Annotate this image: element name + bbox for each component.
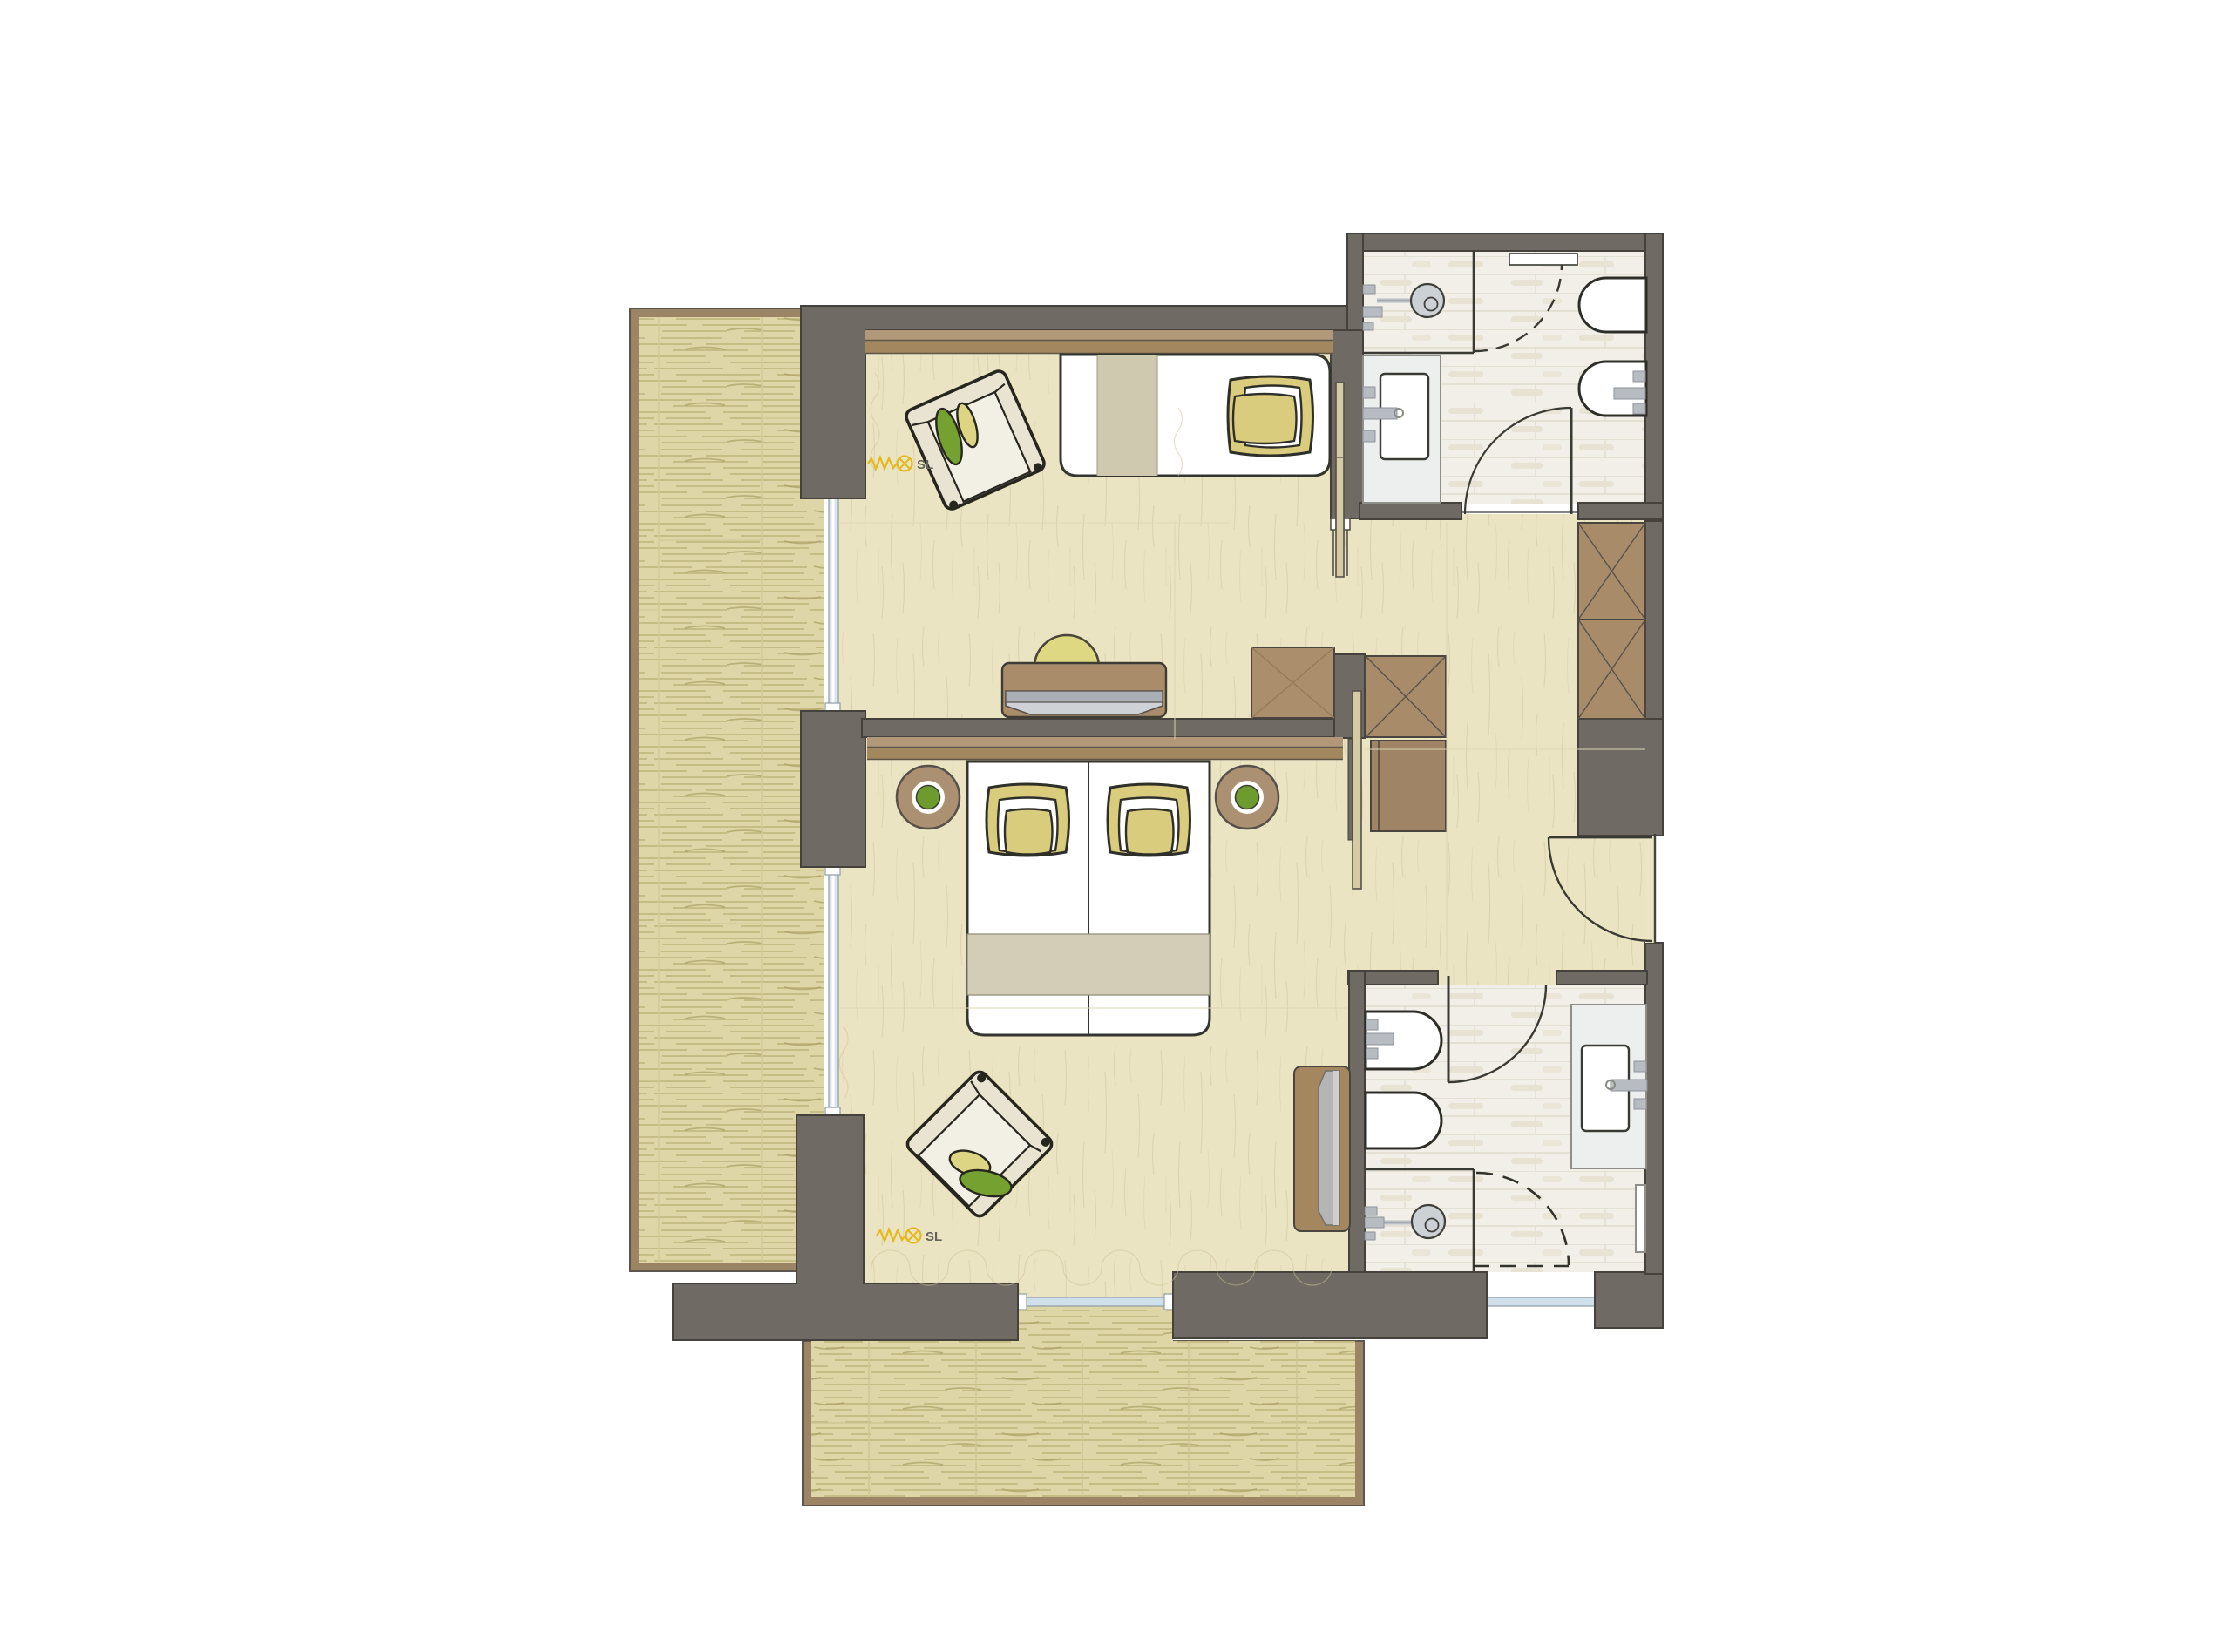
- svg-text:SL: SL: [917, 457, 933, 472]
- svg-text:SL: SL: [926, 1229, 942, 1244]
